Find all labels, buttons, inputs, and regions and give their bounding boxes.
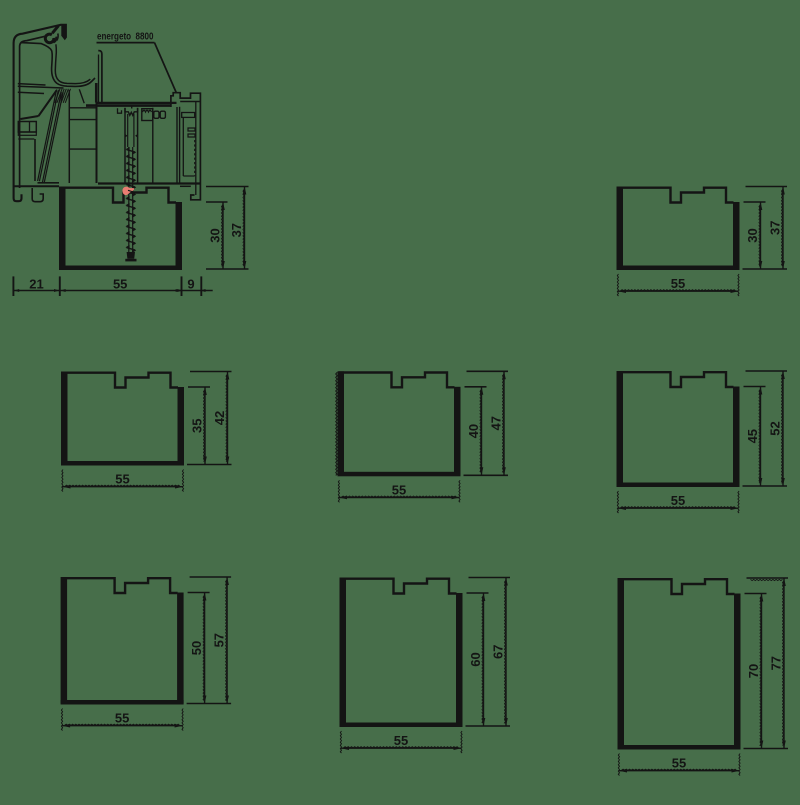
svg-text:55: 55 xyxy=(671,493,685,508)
svg-text:37: 37 xyxy=(229,223,244,237)
svg-text:55: 55 xyxy=(392,483,406,498)
svg-text:30: 30 xyxy=(745,228,760,242)
svg-text:9: 9 xyxy=(187,276,194,291)
svg-text:57: 57 xyxy=(212,633,227,647)
svg-text:67: 67 xyxy=(490,645,505,659)
svg-text:55: 55 xyxy=(672,756,686,771)
svg-text:35: 35 xyxy=(189,419,204,433)
svg-text:55: 55 xyxy=(115,711,129,726)
svg-text:21: 21 xyxy=(29,276,43,291)
svg-text:70: 70 xyxy=(746,664,761,678)
svg-text:55: 55 xyxy=(113,276,127,291)
svg-text:40: 40 xyxy=(466,424,481,438)
svg-text:52: 52 xyxy=(767,421,782,435)
svg-text:60: 60 xyxy=(468,652,483,666)
svg-text:37: 37 xyxy=(767,221,782,235)
svg-text:55: 55 xyxy=(671,276,685,291)
svg-text:50: 50 xyxy=(189,641,204,655)
svg-text:42: 42 xyxy=(212,411,227,425)
svg-text:energeto 8800: energeto 8800 xyxy=(97,31,154,42)
svg-text:45: 45 xyxy=(745,429,760,443)
svg-text:47: 47 xyxy=(488,416,503,430)
svg-text:77: 77 xyxy=(768,656,783,670)
svg-text:55: 55 xyxy=(115,472,129,487)
svg-text:55: 55 xyxy=(394,733,408,748)
svg-text:30: 30 xyxy=(207,228,222,242)
